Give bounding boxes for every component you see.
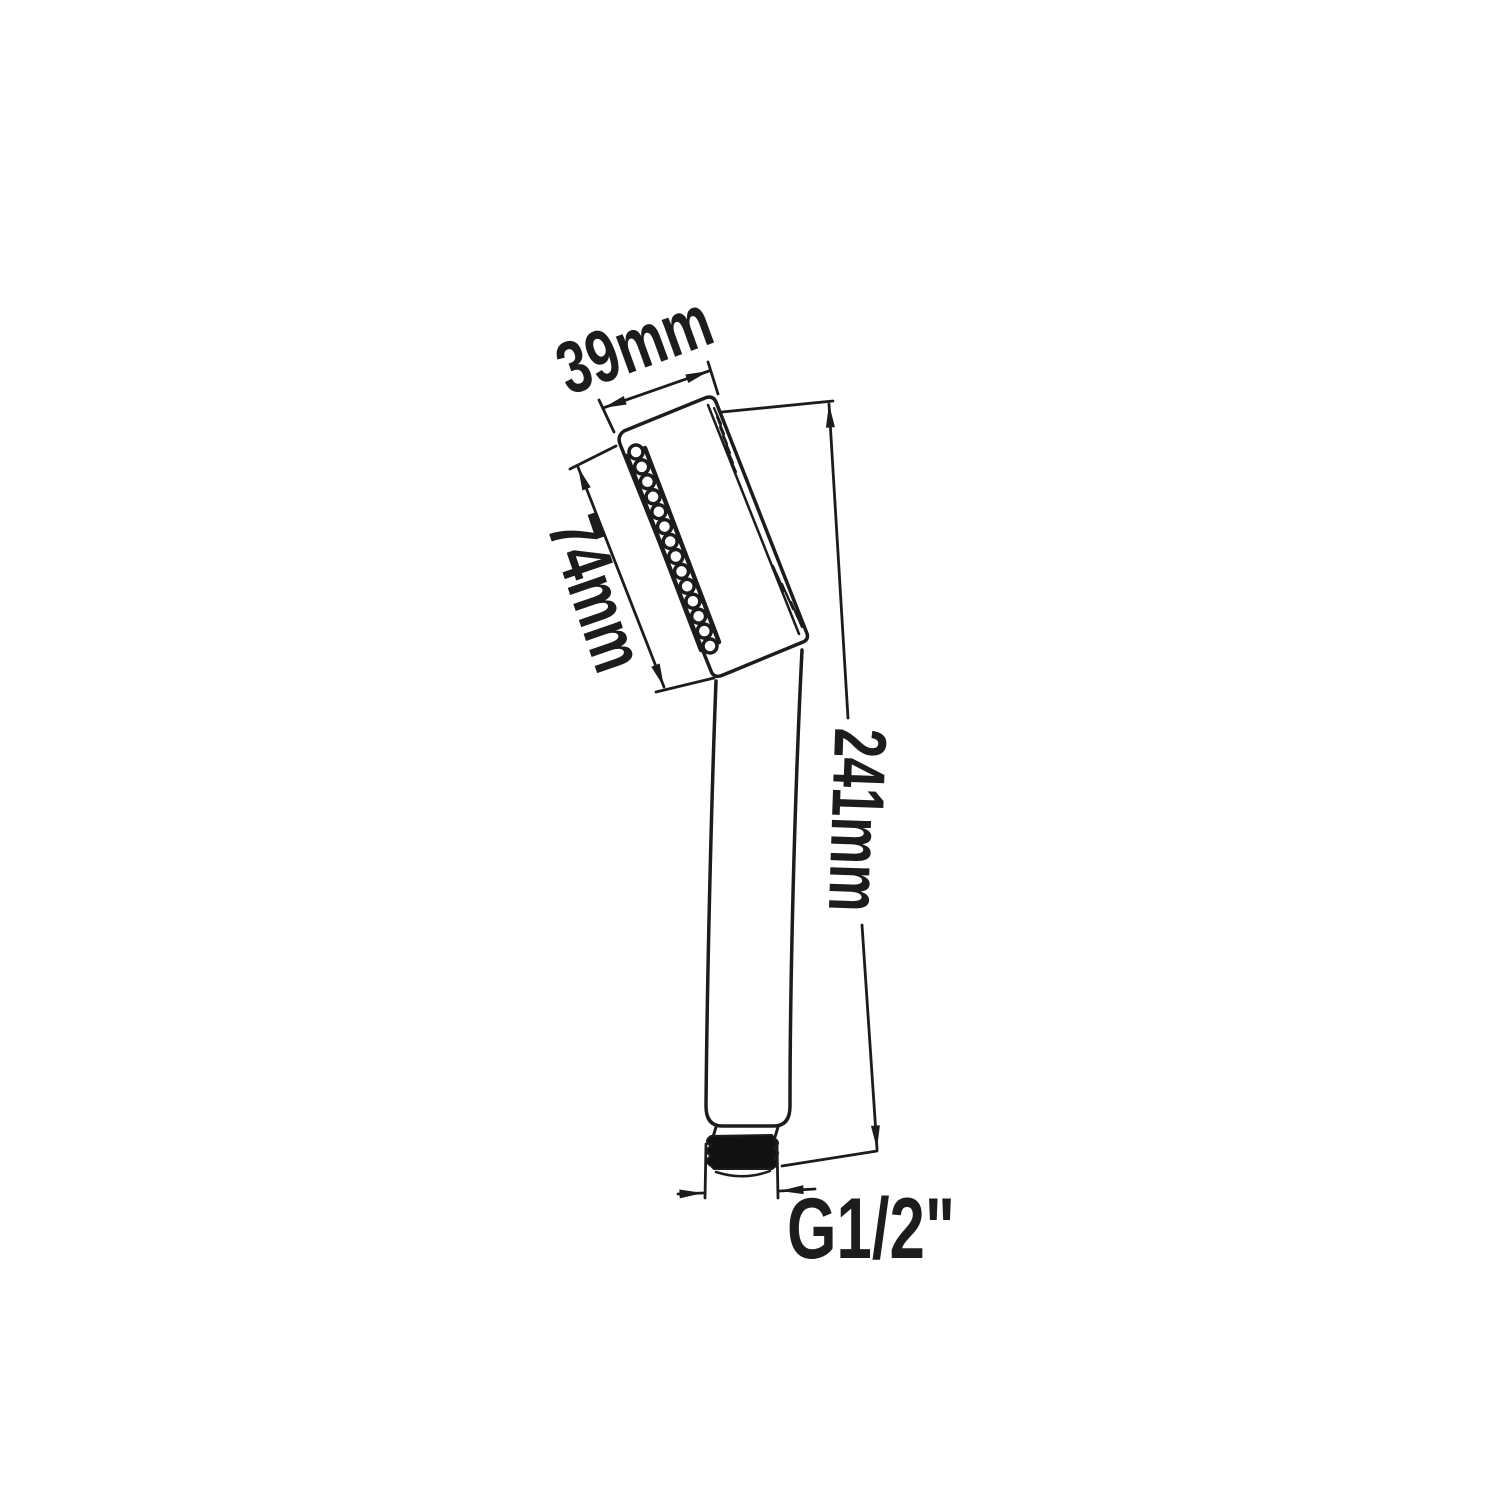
technical-drawing-canvas: 39mm 74mm 241mm G1/2" (0, 0, 1500, 1500)
nozzle-dot (640, 475, 654, 489)
nozzle-dot (663, 535, 677, 549)
extension-line (708, 362, 718, 394)
dimension-arrow-left (678, 1193, 703, 1194)
thread-bottom-rim (716, 1171, 770, 1176)
nozzle-dot (635, 460, 649, 474)
dimension-line (862, 925, 877, 1149)
dimension-label-g12: G1/2" (787, 1182, 955, 1277)
thread-connector (707, 1135, 778, 1169)
nozzle-dot (680, 579, 694, 593)
nozzle-dot (669, 550, 683, 564)
handle-thread-neck-right (775, 1127, 778, 1137)
face-strip-inner-line (645, 448, 719, 642)
extension-line (705, 1144, 706, 1198)
shower-head (619, 397, 807, 1176)
extension-line (782, 1151, 877, 1166)
dimension-label-39mm: 39mm (546, 278, 723, 410)
extension-line (777, 1144, 778, 1198)
nozzle-dot (675, 564, 689, 578)
edge-hatch-bottom (773, 566, 802, 627)
dimension-line (829, 404, 848, 718)
dimension-label-241mm: 241mm (813, 727, 902, 913)
nozzle-dot (658, 520, 672, 534)
dimension-label-74mm: 74mm (532, 505, 662, 682)
nozzle-dot (646, 490, 660, 504)
nozzle-dot (652, 505, 666, 519)
nozzle-dot (686, 594, 700, 608)
head-edge-inner-line (708, 405, 799, 634)
nozzle-dot (703, 639, 717, 653)
shower-head-dimension-diagram: 39mm 74mm 241mm G1/2" (0, 0, 1500, 1500)
nozzle-dot (692, 609, 706, 623)
extension-line (570, 446, 616, 469)
nozzle-dot (629, 445, 643, 459)
extension-line (722, 401, 833, 412)
nozzle-dot (697, 624, 711, 638)
handle-outline (706, 650, 802, 1126)
